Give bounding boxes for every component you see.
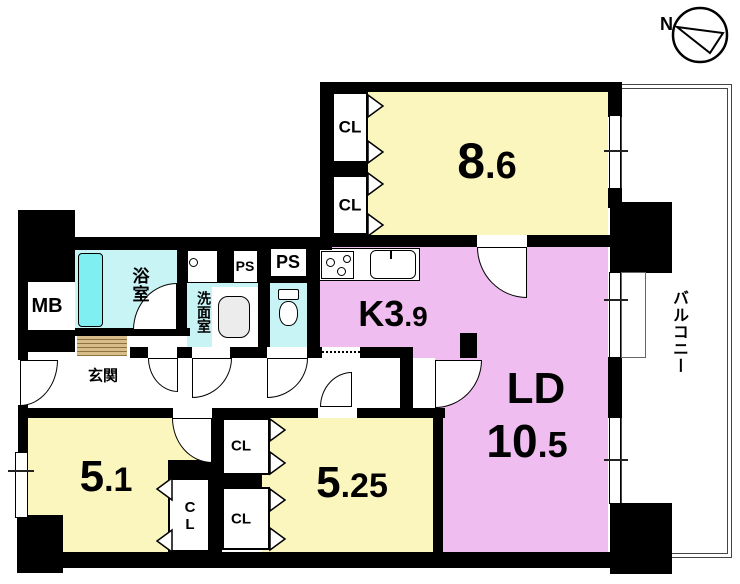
- pipe-space-label: PS: [276, 253, 300, 271]
- bath-label: 浴室: [131, 267, 148, 303]
- room-51-label: 5.1: [80, 455, 133, 499]
- north-label: N: [660, 14, 673, 34]
- room-525-label: 5.25: [316, 461, 388, 505]
- compass-rose: N: [648, 2, 738, 74]
- floor-plan: 8.6 K3.9 LD 10.5 5.1 5.25 CL CL CL CL CL…: [0, 0, 740, 584]
- kitchen-label: K3.9: [358, 296, 427, 332]
- living-area-label: 10.5: [486, 418, 567, 464]
- closet-label: CL: [231, 512, 251, 527]
- room-86-label: 8.6: [457, 136, 517, 186]
- balcony-label: バルコニー: [670, 290, 686, 375]
- living-name-label: LD: [507, 367, 566, 411]
- closet-label: CL: [339, 119, 362, 136]
- washroom-label: 洗面室: [197, 291, 211, 333]
- closet-label: CL: [339, 197, 362, 214]
- meter-box-label: MB: [31, 296, 62, 316]
- closet-label: CL: [183, 499, 198, 533]
- entrance-label: 玄関: [88, 369, 118, 384]
- pipe-space-label: PS: [236, 259, 255, 273]
- closet-label: CL: [231, 439, 251, 454]
